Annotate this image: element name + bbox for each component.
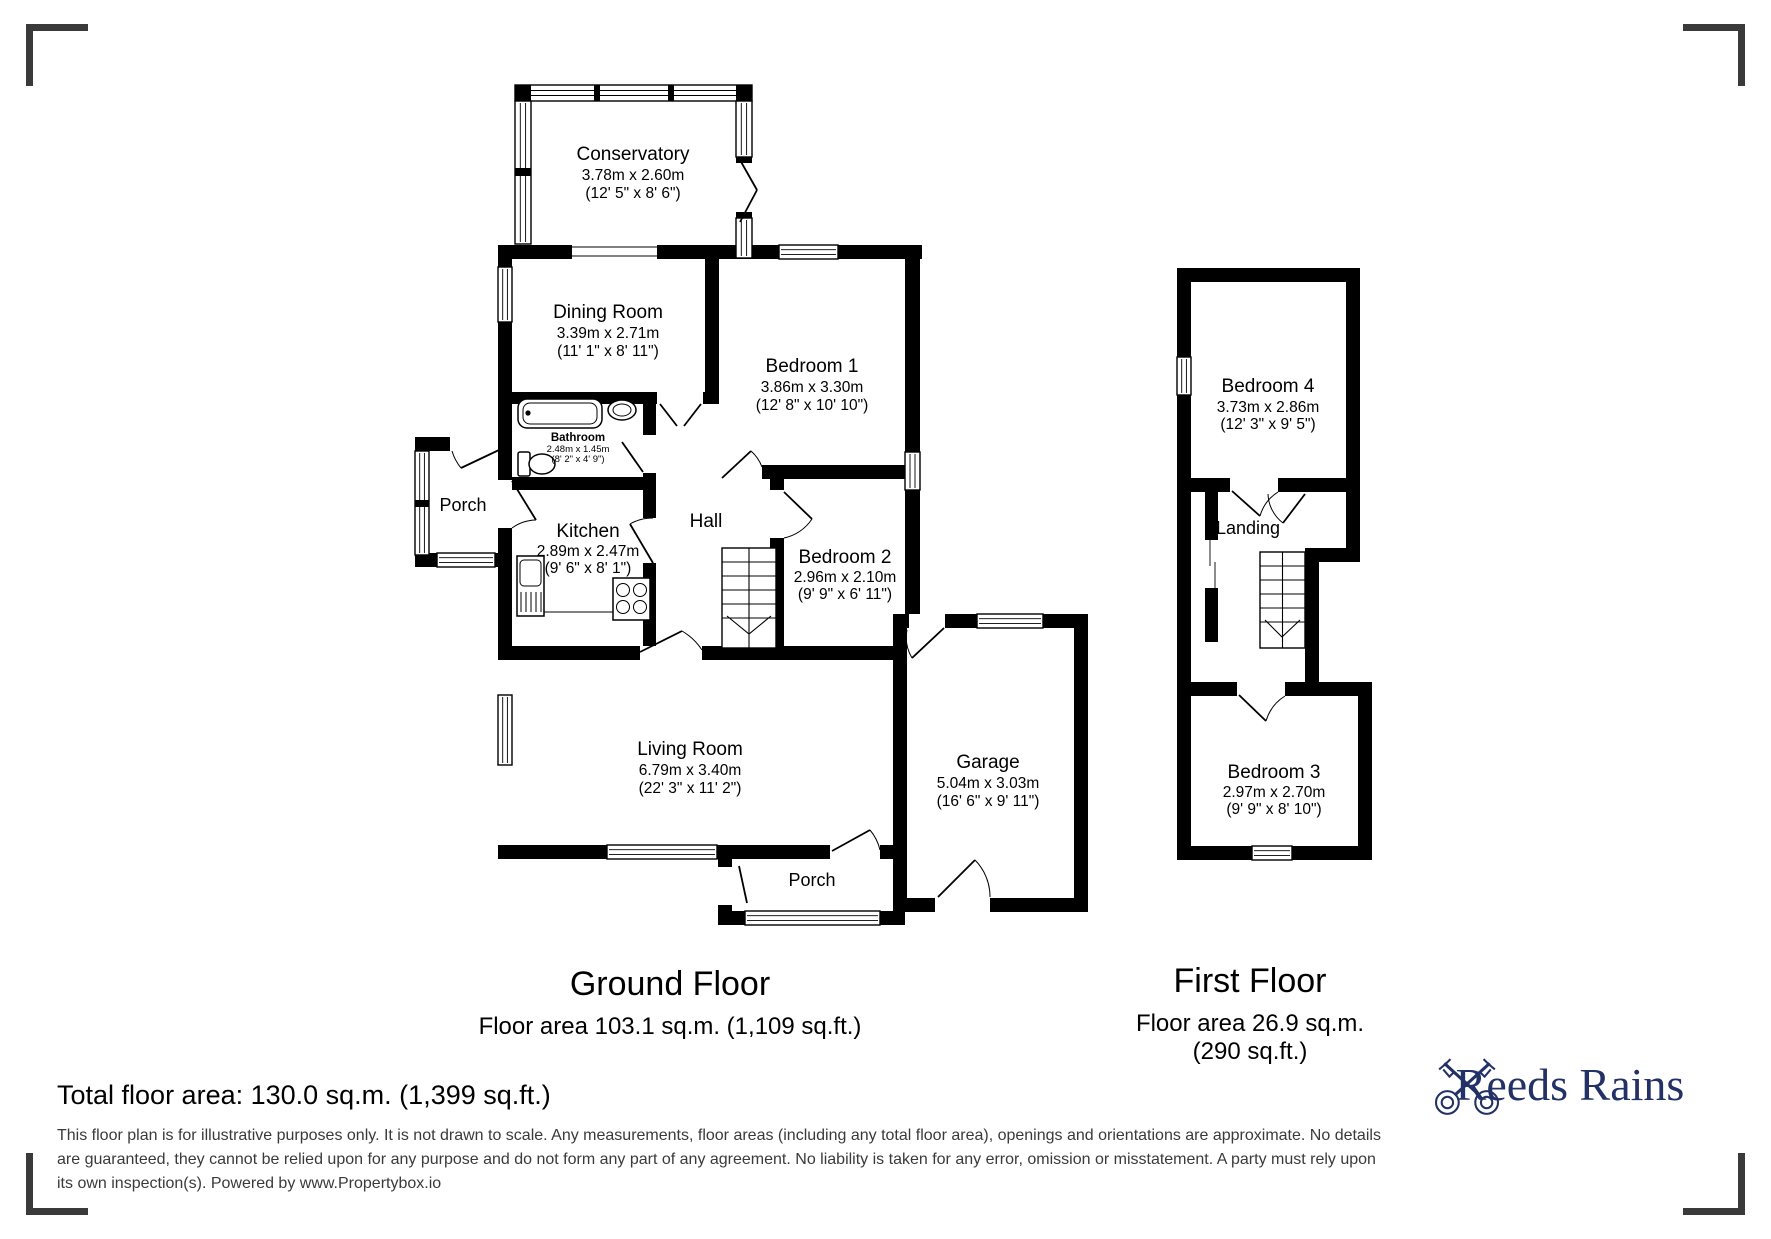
- garage-metric: 5.04m x 3.03m: [937, 775, 1040, 792]
- window: [977, 614, 1043, 628]
- bathroom-imperial: (8' 2" x 4' 9"): [551, 454, 604, 465]
- corner-mark-bottom-right: [1683, 1153, 1745, 1215]
- living-room-imperial: (22' 3" x 11' 2"): [639, 780, 742, 797]
- conservatory-label: Conservatory: [577, 144, 690, 165]
- first-floor-plan: Bedroom 4 3.73m x 2.86m (12' 3" x 9' 5")…: [1177, 268, 1372, 860]
- ground-floor-title: Ground Floor: [400, 965, 940, 1003]
- dining-room-label: Dining Room: [553, 302, 663, 323]
- window: [498, 695, 512, 765]
- ground-floor-plan: Conservatory 3.78m x 2.60m (12' 5" x 8' …: [415, 85, 1088, 925]
- window: [736, 218, 752, 258]
- door-living-porch: [832, 830, 880, 851]
- door-bedroom2: [784, 492, 812, 538]
- door-garage-side: [906, 628, 944, 658]
- kitchen-imperial: (9' 6" x 8' 1"): [545, 560, 632, 577]
- door-dining-hall: [660, 404, 701, 426]
- total-floor-area: Total floor area: 130.0 sq.m. (1,399 sq.…: [57, 1080, 551, 1111]
- dining-room-metric: 3.39m x 2.71m: [557, 325, 660, 342]
- bedroom2-label: Bedroom 2: [799, 547, 892, 568]
- sink: [608, 400, 636, 420]
- bedroom1-label: Bedroom 1: [766, 356, 859, 377]
- first-floor-area-line2: (290 sq.ft.): [1030, 1038, 1470, 1066]
- corner-mark-top-right: [1683, 24, 1745, 86]
- window: [1177, 357, 1191, 395]
- window: [905, 452, 920, 490]
- ground-floor-area: Floor area 103.1 sq.m. (1,109 sq.ft.): [400, 1013, 940, 1041]
- dining-room-imperial: (11' 1" x 8' 11"): [557, 343, 659, 360]
- bedroom3-metric: 2.97m x 2.70m: [1223, 784, 1326, 801]
- door-rear-porch: [739, 866, 747, 903]
- bedroom3-imperial: (9' 9" x 8' 10"): [1226, 801, 1321, 818]
- door-front-porch: [452, 450, 499, 468]
- door-garage-rear: [938, 860, 990, 897]
- conservatory-metric: 3.78m x 2.60m: [582, 167, 685, 184]
- landing-label: Landing: [1216, 518, 1280, 538]
- living-room-label: Living Room: [637, 739, 743, 760]
- first-floor-title: First Floor: [1030, 962, 1470, 1000]
- floor-plan-canvas: Conservatory 3.78m x 2.60m (12' 5" x 8' …: [0, 0, 1771, 1239]
- garage-label: Garage: [956, 752, 1019, 773]
- kitchen-label: Kitchen: [556, 521, 619, 542]
- stairs-first: [1260, 552, 1305, 648]
- stairs-ground: [722, 548, 776, 648]
- toilet: [518, 452, 555, 476]
- stove: [613, 578, 650, 620]
- window: [415, 451, 429, 555]
- window: [437, 553, 495, 567]
- hall-label: Hall: [690, 511, 723, 532]
- bedroom4-imperial: (12' 3" x 9' 5"): [1220, 416, 1315, 433]
- window: [498, 267, 512, 322]
- bedroom3-label: Bedroom 3: [1228, 762, 1321, 783]
- opening-to-dining: [572, 247, 657, 256]
- window: [779, 245, 838, 259]
- first-floor-area-line1: Floor area 26.9 sq.m.: [1030, 1010, 1470, 1038]
- living-room-metric: 6.79m x 3.40m: [639, 762, 742, 779]
- window: [607, 845, 717, 859]
- first-floor-caption: First Floor Floor area 26.9 sq.m. (290 s…: [1030, 962, 1470, 1066]
- window: [515, 85, 752, 101]
- bedroom4-label: Bedroom 4: [1222, 376, 1315, 397]
- disclaimer-text: This floor plan is for illustrative purp…: [57, 1124, 1382, 1196]
- conservatory-imperial: (12' 5" x 8' 6"): [585, 185, 680, 202]
- window: [736, 101, 752, 157]
- reeds-rains-logo: Reeds Rains: [1432, 1056, 1708, 1111]
- window: [745, 911, 880, 925]
- bedroom2-imperial: (9' 9" x 6' 11"): [798, 586, 892, 603]
- bedroom4-metric: 3.73m x 2.86m: [1217, 399, 1320, 416]
- ground-floor-caption: Ground Floor Floor area 103.1 sq.m. (1,1…: [400, 965, 940, 1041]
- bedroom2-metric: 2.96m x 2.10m: [794, 569, 897, 586]
- bedroom1-metric: 3.86m x 3.30m: [761, 379, 864, 396]
- corner-mark-top-left: [26, 24, 88, 86]
- garage-imperial: (16' 6" x 9' 11"): [937, 793, 1040, 810]
- cupboard-doors: [1210, 540, 1215, 588]
- bath-tub: [518, 399, 602, 428]
- porch-front-label: Porch: [439, 495, 486, 515]
- crossed-keys-icon: [1432, 1056, 1502, 1118]
- kitchen-metric: 2.89m x 2.47m: [537, 543, 640, 560]
- door-bedroom3: [1239, 695, 1285, 721]
- door-bathroom: [622, 442, 643, 472]
- bathroom-label: Bathroom: [551, 432, 605, 444]
- bedroom1-imperial: (12' 8" x 10' 10"): [756, 397, 869, 414]
- door-bedroom1: [722, 451, 762, 478]
- window: [1252, 846, 1292, 860]
- door-bedroom4: [1232, 491, 1278, 516]
- porch-rear-label: Porch: [788, 870, 835, 890]
